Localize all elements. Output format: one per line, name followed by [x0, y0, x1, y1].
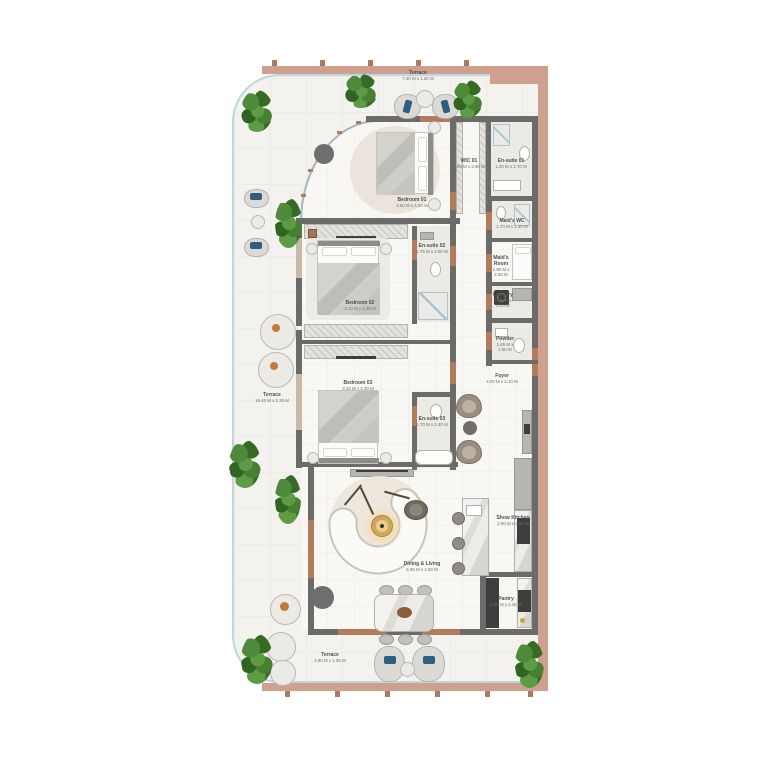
plant-icon	[275, 198, 302, 248]
facade-band-bottom	[262, 683, 548, 691]
wall	[492, 282, 538, 286]
cushion	[250, 193, 262, 200]
cushion	[250, 242, 262, 249]
pillow	[322, 247, 347, 256]
cushion	[272, 324, 280, 332]
cooktop	[517, 518, 530, 544]
facade-band-top-right	[490, 74, 548, 84]
cushion	[270, 362, 278, 370]
plant-icon	[344, 74, 378, 108]
door-threshold	[412, 406, 417, 426]
facade-tick	[528, 691, 533, 697]
blanket	[319, 391, 379, 443]
lounge-chair	[412, 646, 445, 682]
pantry-cooktop	[518, 590, 531, 612]
side-table	[306, 243, 318, 255]
tv-bedroom-03	[336, 356, 376, 359]
facade-tick	[285, 691, 290, 697]
tall-cabinet	[514, 458, 532, 510]
round-table	[311, 586, 334, 609]
plant-icon	[453, 80, 483, 118]
island-sink	[466, 505, 482, 516]
pillow	[323, 448, 347, 457]
window-mullion	[301, 194, 306, 197]
bed-01	[376, 132, 434, 194]
facade-tick	[485, 691, 490, 697]
round-table	[251, 215, 265, 229]
wall	[486, 196, 538, 201]
dining-chair	[417, 634, 432, 645]
round-table	[416, 90, 434, 108]
facade-tick	[416, 60, 421, 66]
door-threshold	[486, 332, 492, 350]
door-threshold	[486, 212, 492, 230]
door-threshold	[450, 362, 456, 384]
headboard	[318, 241, 380, 246]
lounge-chair	[374, 646, 405, 682]
bathtub	[415, 450, 453, 465]
bed-02	[317, 240, 379, 314]
facade-tick	[435, 691, 440, 697]
facade-band-top	[262, 66, 548, 74]
blanket	[377, 133, 415, 195]
dining-chair	[379, 634, 394, 645]
bar-stool	[452, 512, 465, 525]
side-table	[428, 198, 441, 211]
side-table	[380, 243, 392, 255]
headboard	[319, 458, 379, 463]
round-side-table	[463, 421, 477, 435]
bar-stool	[452, 562, 465, 575]
facade-band-right	[538, 84, 548, 691]
toilet	[496, 206, 506, 220]
side-table	[307, 452, 319, 464]
cushion	[384, 656, 396, 664]
round-table	[270, 660, 296, 686]
plant-icon	[275, 474, 301, 524]
facade-tick	[272, 60, 277, 66]
pillow	[418, 137, 427, 162]
armchair-cushion	[462, 400, 476, 413]
dining-chair	[398, 634, 413, 645]
wall	[300, 340, 452, 344]
maids-bed	[512, 244, 532, 280]
blanket	[318, 263, 380, 315]
wardrobe	[456, 122, 463, 214]
shower	[493, 124, 510, 146]
window-mullion	[337, 131, 342, 134]
facade-tick	[464, 60, 469, 66]
door-threshold	[412, 240, 417, 260]
round-table	[400, 662, 415, 677]
toilet	[519, 146, 530, 161]
window-mullion	[308, 169, 313, 172]
cushion	[423, 656, 435, 664]
pillow	[351, 247, 376, 256]
wall	[412, 392, 456, 397]
laundry-counter	[512, 288, 532, 301]
headboard	[428, 133, 433, 195]
pantry-cabinet	[486, 578, 499, 628]
facade-tick	[368, 60, 373, 66]
wall	[486, 318, 538, 323]
round-table	[314, 144, 334, 164]
armchair-cushion	[462, 446, 476, 459]
plant-icon	[229, 440, 261, 488]
floor-plan: Terrace 7.40 M x 1.60 M Bedroom 01 4.60 …	[0, 0, 768, 768]
wall	[492, 360, 538, 364]
side-table	[380, 452, 392, 464]
window-threshold	[296, 374, 302, 430]
toilet	[430, 404, 442, 419]
door-threshold	[486, 294, 492, 310]
window-mullion	[356, 121, 361, 124]
pillow	[351, 448, 375, 457]
side-table	[428, 121, 441, 134]
plant-icon	[241, 634, 273, 684]
bed-03	[318, 390, 378, 464]
wall	[486, 120, 491, 196]
cushion	[280, 602, 289, 611]
washer-drum	[497, 293, 506, 302]
table-centerpiece	[397, 607, 412, 618]
facade-tick	[335, 691, 340, 697]
round-lounge	[260, 314, 296, 350]
facade-tick	[320, 60, 325, 66]
pillow	[515, 247, 531, 254]
toilet	[513, 338, 525, 353]
vanity	[420, 232, 434, 240]
round-lounge	[258, 352, 294, 388]
plant-icon	[241, 90, 273, 132]
bar-stool	[452, 537, 465, 550]
wardrobe	[479, 122, 486, 214]
pillow	[418, 166, 427, 191]
dresser	[308, 229, 317, 238]
facade-tick	[385, 691, 390, 697]
toilet	[430, 262, 441, 277]
coffee-table-decor	[380, 524, 384, 528]
pantry-decor	[520, 618, 525, 623]
sink	[495, 328, 508, 337]
wall	[492, 238, 538, 242]
shower	[514, 204, 530, 226]
plant-icon	[515, 640, 544, 688]
shower	[418, 292, 448, 320]
wardrobe	[304, 324, 408, 338]
console-decor	[524, 424, 530, 434]
vanity-sink	[493, 180, 521, 191]
door-threshold	[486, 254, 492, 272]
accent-chair-cushion	[409, 504, 423, 516]
door-threshold	[450, 246, 456, 266]
window-threshold	[296, 238, 302, 278]
